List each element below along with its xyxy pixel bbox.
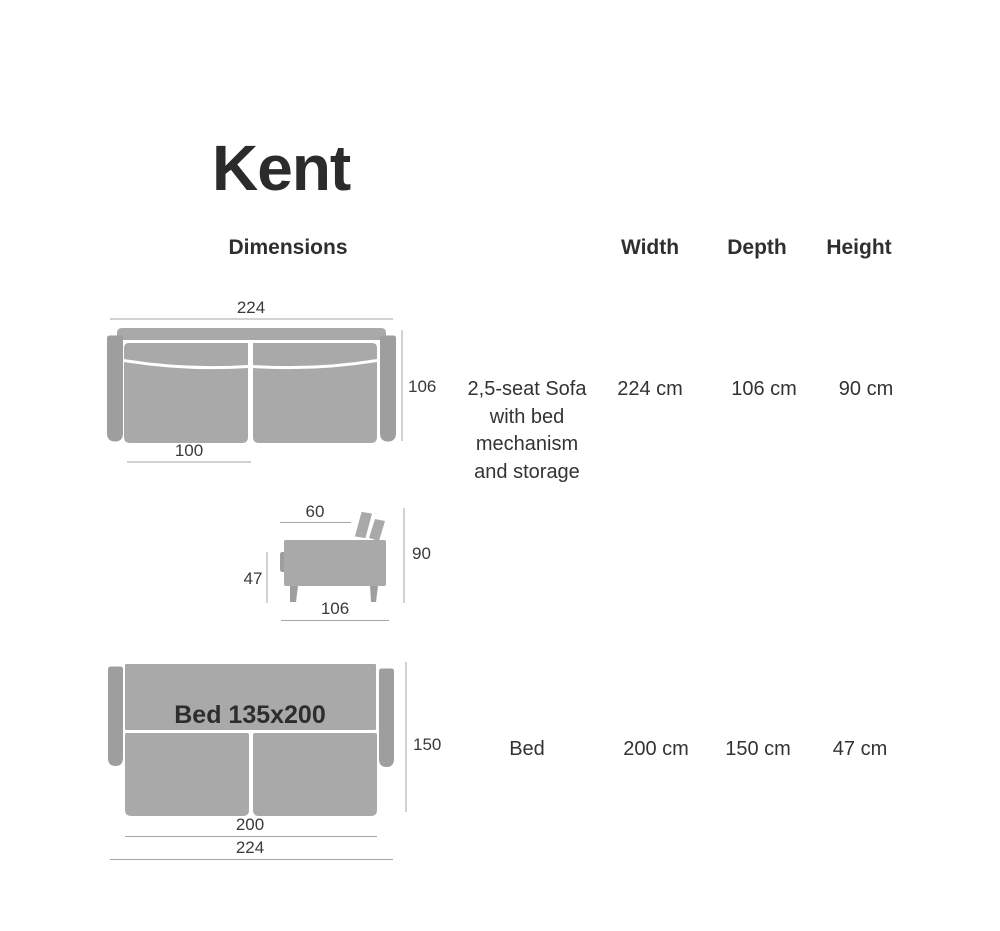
bed-view-armrest-right: [379, 669, 394, 768]
row-sofa-width-value: 224 cm: [590, 376, 710, 404]
side-view-depth-label: 106: [321, 599, 349, 618]
row-bed-height-value: 47 cm: [800, 736, 920, 764]
product-spec-sheet: Kent Dimensions Width Depth Height 224 1…: [0, 0, 1000, 931]
bed-view-bed-length-label: 200: [236, 815, 264, 834]
side-view-body: [284, 540, 386, 586]
bed-view-seat-cushion-right: [253, 733, 377, 816]
top-view-seat-cushion-left: [124, 362, 248, 443]
top-view-armrest-left: [107, 336, 123, 442]
top-view-back-frame: [117, 328, 386, 340]
bed-view-seat-cushion-left: [125, 733, 249, 816]
side-view-armrest-profile: [280, 552, 284, 572]
bed-view-armrest-left: [108, 667, 123, 767]
row-sofa-description-line: mechanism: [432, 431, 622, 459]
bed-view-width-label: 224: [236, 838, 264, 857]
side-view-rear-leg: [370, 586, 378, 602]
top-view-backrest-cushion-right: [253, 343, 377, 366]
top-view-seat-cushion-right: [253, 362, 377, 443]
row-sofa-description-line: with bed: [432, 404, 622, 432]
side-view-height-label: 90: [412, 544, 431, 563]
side-view-front-leg: [290, 586, 298, 602]
sofa-top-view-diagram: 224 106 100: [107, 298, 436, 462]
bed-view-size-label: Bed 135x200: [174, 701, 326, 729]
row-sofa-height-value: 90 cm: [806, 376, 926, 404]
top-view-backrest-cushion-left: [124, 343, 248, 366]
side-view-backrest-rear-cushion: [369, 519, 385, 541]
sofa-side-view-diagram: 60 47 90 106: [244, 502, 431, 621]
top-view-width-label: 224: [237, 298, 265, 317]
sofa-bed-view-diagram: Bed 135x200 150 200 224: [108, 662, 441, 860]
top-view-armrest-right: [380, 336, 396, 442]
row-sofa-description-line: and storage: [432, 459, 622, 487]
side-view-back-depth-label: 60: [306, 502, 325, 521]
top-view-seat-width-label: 100: [175, 441, 203, 460]
row-bed-description: Bed: [432, 736, 622, 764]
side-view-seat-height-label: 47: [244, 569, 263, 588]
